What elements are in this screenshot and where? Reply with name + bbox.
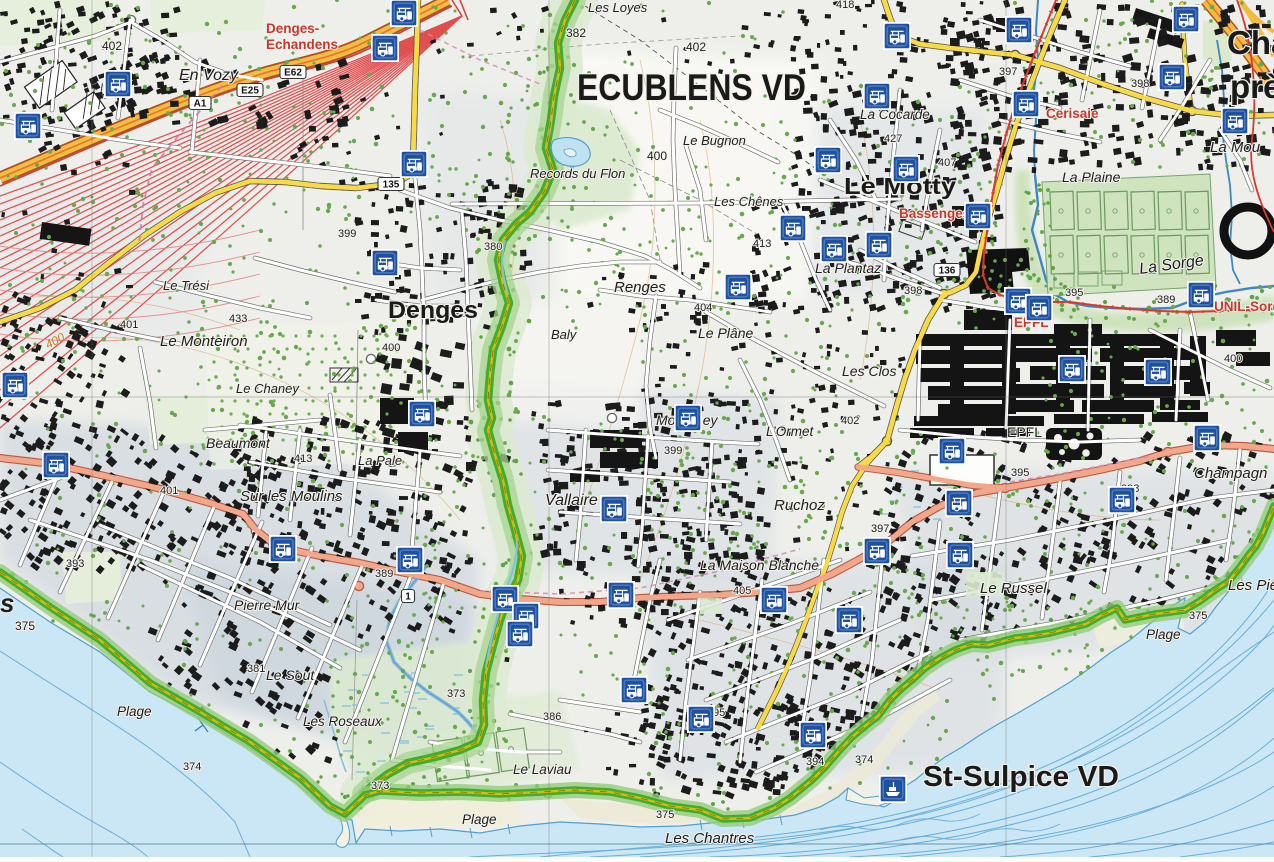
svg-text:Les Loyes: Les Loyes: [588, 0, 648, 15]
svg-text:Champagn: Champagn: [1194, 465, 1267, 482]
svg-text:Le Monteiron: Le Monteiron: [160, 333, 248, 350]
svg-text:381: 381: [247, 663, 265, 675]
svg-text:Records du Flon: Records du Flon: [530, 166, 625, 181]
svg-text:401: 401: [160, 485, 178, 497]
svg-text:386: 386: [543, 711, 561, 723]
svg-text:413: 413: [753, 238, 771, 250]
svg-text:E62: E62: [284, 68, 302, 79]
svg-text:1: 1: [405, 592, 411, 603]
svg-text:402: 402: [102, 39, 122, 53]
svg-text:St-Sulpice VD: St-Sulpice VD: [923, 761, 1119, 793]
svg-text:400: 400: [382, 342, 400, 354]
svg-text:136: 136: [939, 266, 956, 277]
svg-text:Les Pie: Les Pie: [1228, 577, 1274, 594]
svg-text:Pierre Mur: Pierre Mur: [234, 597, 301, 613]
svg-text:UNIL-Sorg: UNIL-Sorg: [1214, 299, 1274, 314]
svg-text:La Mou: La Mou: [1210, 139, 1261, 156]
svg-text:Le Sout: Le Sout: [266, 667, 315, 683]
svg-text:Le Plâne: Le Plâne: [698, 325, 753, 341]
svg-text:Vallaire: Vallaire: [545, 492, 598, 509]
svg-text:404: 404: [694, 302, 712, 314]
svg-text:401: 401: [120, 319, 138, 331]
svg-text:Les Roseaux: Les Roseaux: [303, 714, 383, 729]
svg-text:394: 394: [806, 756, 824, 768]
svg-text:399: 399: [338, 228, 356, 240]
svg-text:397: 397: [871, 523, 889, 535]
svg-text:427: 427: [884, 133, 902, 145]
svg-text:374: 374: [855, 754, 873, 766]
svg-text:E25: E25: [241, 86, 259, 97]
svg-text:397: 397: [999, 66, 1017, 78]
svg-text:Renges: Renges: [614, 279, 666, 296]
svg-text:Bassenges: Bassenges: [899, 206, 970, 221]
svg-text:407: 407: [938, 157, 956, 169]
svg-text:402: 402: [841, 415, 859, 427]
svg-text:395: 395: [1011, 467, 1029, 479]
svg-text:389: 389: [1157, 294, 1175, 306]
svg-text:Echandens: Echandens: [266, 37, 338, 52]
svg-text:413: 413: [294, 453, 312, 465]
svg-text:Les Chênes: Les Chênes: [714, 194, 784, 209]
svg-text:375: 375: [15, 619, 35, 633]
svg-text:398: 398: [1131, 78, 1149, 90]
svg-text:A1: A1: [194, 99, 207, 110]
svg-text:373: 373: [371, 780, 389, 792]
svg-text:373: 373: [447, 688, 465, 700]
svg-text:375: 375: [656, 809, 674, 821]
svg-text:Cha: Cha: [1227, 24, 1274, 61]
svg-text:375: 375: [1189, 610, 1207, 622]
svg-text:Ruchoz: Ruchoz: [774, 497, 825, 514]
svg-text:400: 400: [1224, 353, 1242, 365]
svg-text:Cerisaie: Cerisaie: [1046, 106, 1099, 121]
svg-text:389: 389: [375, 568, 393, 580]
svg-text:La Plaine: La Plaine: [1062, 169, 1121, 185]
svg-text:s: s: [0, 588, 14, 618]
svg-text:Sur les Moulins: Sur les Moulins: [240, 488, 343, 505]
svg-text:135: 135: [383, 180, 400, 191]
svg-text:Le Russel: Le Russel: [980, 580, 1047, 597]
svg-text:382: 382: [566, 26, 586, 40]
svg-text:prè: prè: [1230, 68, 1274, 105]
svg-text:L’Ormet: L’Ormet: [766, 424, 815, 439]
svg-text:Plage: Plage: [117, 704, 152, 719]
svg-text:ECUBLENS VD: ECUBLENS VD: [577, 67, 806, 108]
svg-text:La Maison Blanche: La Maison Blanche: [700, 557, 819, 573]
svg-text:399: 399: [664, 445, 682, 457]
svg-text:380: 380: [484, 241, 502, 253]
svg-text:Baly: Baly: [551, 327, 578, 342]
svg-text:Denges-: Denges-: [266, 21, 319, 36]
svg-text:Plage: Plage: [462, 812, 497, 827]
svg-text:Plage: Plage: [1146, 627, 1181, 642]
svg-text:Le Laviau: Le Laviau: [513, 762, 572, 777]
svg-text:Le Chaney: Le Chaney: [236, 381, 300, 396]
svg-text:La Pale: La Pale: [358, 453, 402, 468]
svg-text:Le Bugnon: Le Bugnon: [683, 133, 746, 148]
svg-text:400: 400: [647, 149, 667, 163]
svg-text:374: 374: [183, 761, 201, 773]
svg-text:Le Trési: Le Trési: [163, 278, 210, 293]
svg-text:393: 393: [66, 558, 84, 570]
svg-text:Les Clos: Les Clos: [842, 363, 896, 379]
svg-text:Beaumont: Beaumont: [206, 435, 271, 451]
svg-text:398: 398: [904, 285, 922, 297]
svg-text:En Vozy: En Vozy: [179, 67, 239, 84]
svg-text:418: 418: [836, 0, 854, 11]
svg-text:Denges: Denges: [388, 297, 478, 324]
svg-text:EPFL: EPFL: [1007, 424, 1042, 440]
svg-text:402: 402: [686, 40, 706, 54]
svg-text:405: 405: [733, 585, 751, 597]
svg-text:433: 433: [229, 313, 247, 325]
svg-text:Les Chantres: Les Chantres: [665, 830, 755, 847]
svg-text:395: 395: [1065, 287, 1083, 299]
